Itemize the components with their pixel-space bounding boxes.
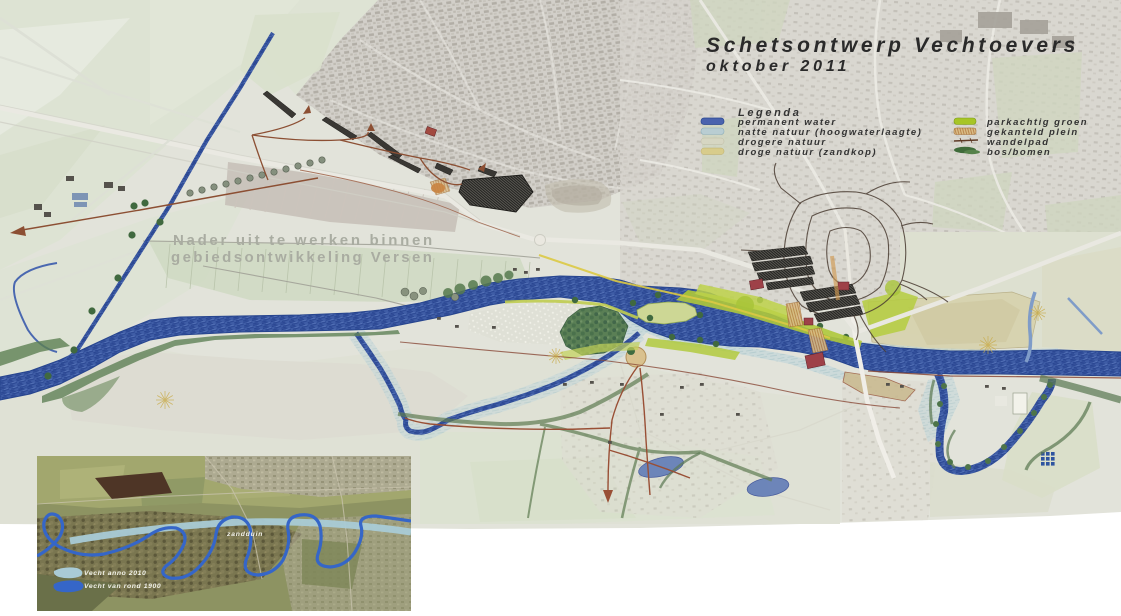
svg-text:Vecht anno 2010: Vecht anno 2010 (84, 570, 146, 577)
svg-text:droge natuur (zandkop): droge natuur (zandkop) (738, 147, 877, 158)
svg-text:Vecht van rond 1900: Vecht van rond 1900 (84, 583, 161, 590)
svg-text:gebiedsontwikkeling Versen: gebiedsontwikkeling Versen (171, 249, 434, 266)
svg-text:bos/bomen: bos/bomen (987, 147, 1051, 158)
svg-text:zandduin: zandduin (226, 531, 263, 538)
svg-text:Nader uit te werken binnen: Nader uit te werken binnen (173, 232, 435, 249)
svg-text:Schetsontwerp Vechtoevers: Schetsontwerp Vechtoevers (706, 34, 1079, 57)
svg-text:oktober 2011: oktober 2011 (706, 58, 850, 75)
